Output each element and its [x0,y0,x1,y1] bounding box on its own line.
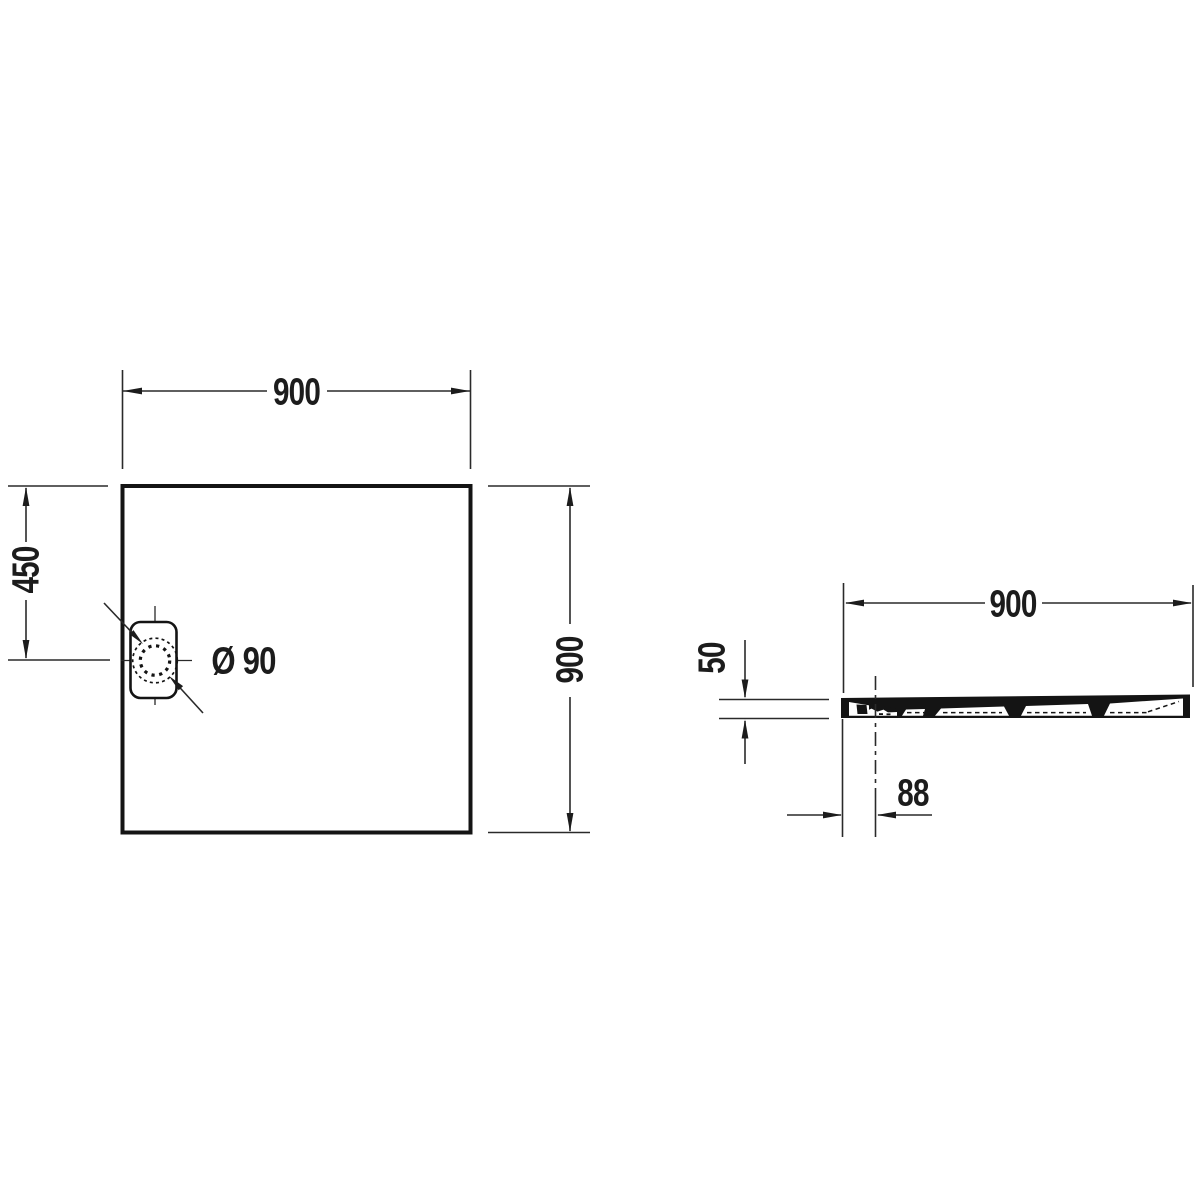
top-height-label: 900 [549,636,591,683]
drain-cover-outline [131,622,177,698]
arrowhead-right [1173,600,1192,607]
side-view: 900 50 88 [691,583,1193,837]
top-width-label: 900 [273,371,320,413]
drain-offset-label: 450 [5,546,47,593]
dimension-top-width: 900 [123,370,471,469]
drain-trap-detail [887,713,891,715]
dimension-side-width: 900 [844,583,1194,693]
drain-diameter-label: Ø 90 [211,641,275,683]
side-profile [841,695,1190,719]
technical-drawing-page: 900 900 450 [0,0,1200,1200]
top-view: 900 900 450 [5,370,591,833]
arrowhead-left [877,812,896,819]
shower-tray-drawing: 900 900 450 [0,0,1200,1200]
arrowhead-down [23,640,30,659]
side-drain-offset-label: 88 [897,772,928,814]
dimension-drain-offset-450: 450 [5,486,110,660]
drain-trap-detail [857,705,868,715]
side-width-label: 900 [989,583,1036,625]
arrowhead-left [845,600,864,607]
arrowhead-right [451,388,470,395]
dimension-top-height: 900 [488,486,591,833]
arrowhead-up [23,487,30,506]
dimension-side-height-50: 50 [691,640,829,764]
arrowhead-up [567,487,574,506]
arrowhead-up [742,720,749,739]
arrowhead-down [567,813,574,832]
arrowhead-left [123,388,142,395]
drain-trap-detail [879,713,883,715]
side-height-label: 50 [691,642,733,673]
arrowhead-right [823,812,842,819]
arrowhead-down [742,680,749,699]
